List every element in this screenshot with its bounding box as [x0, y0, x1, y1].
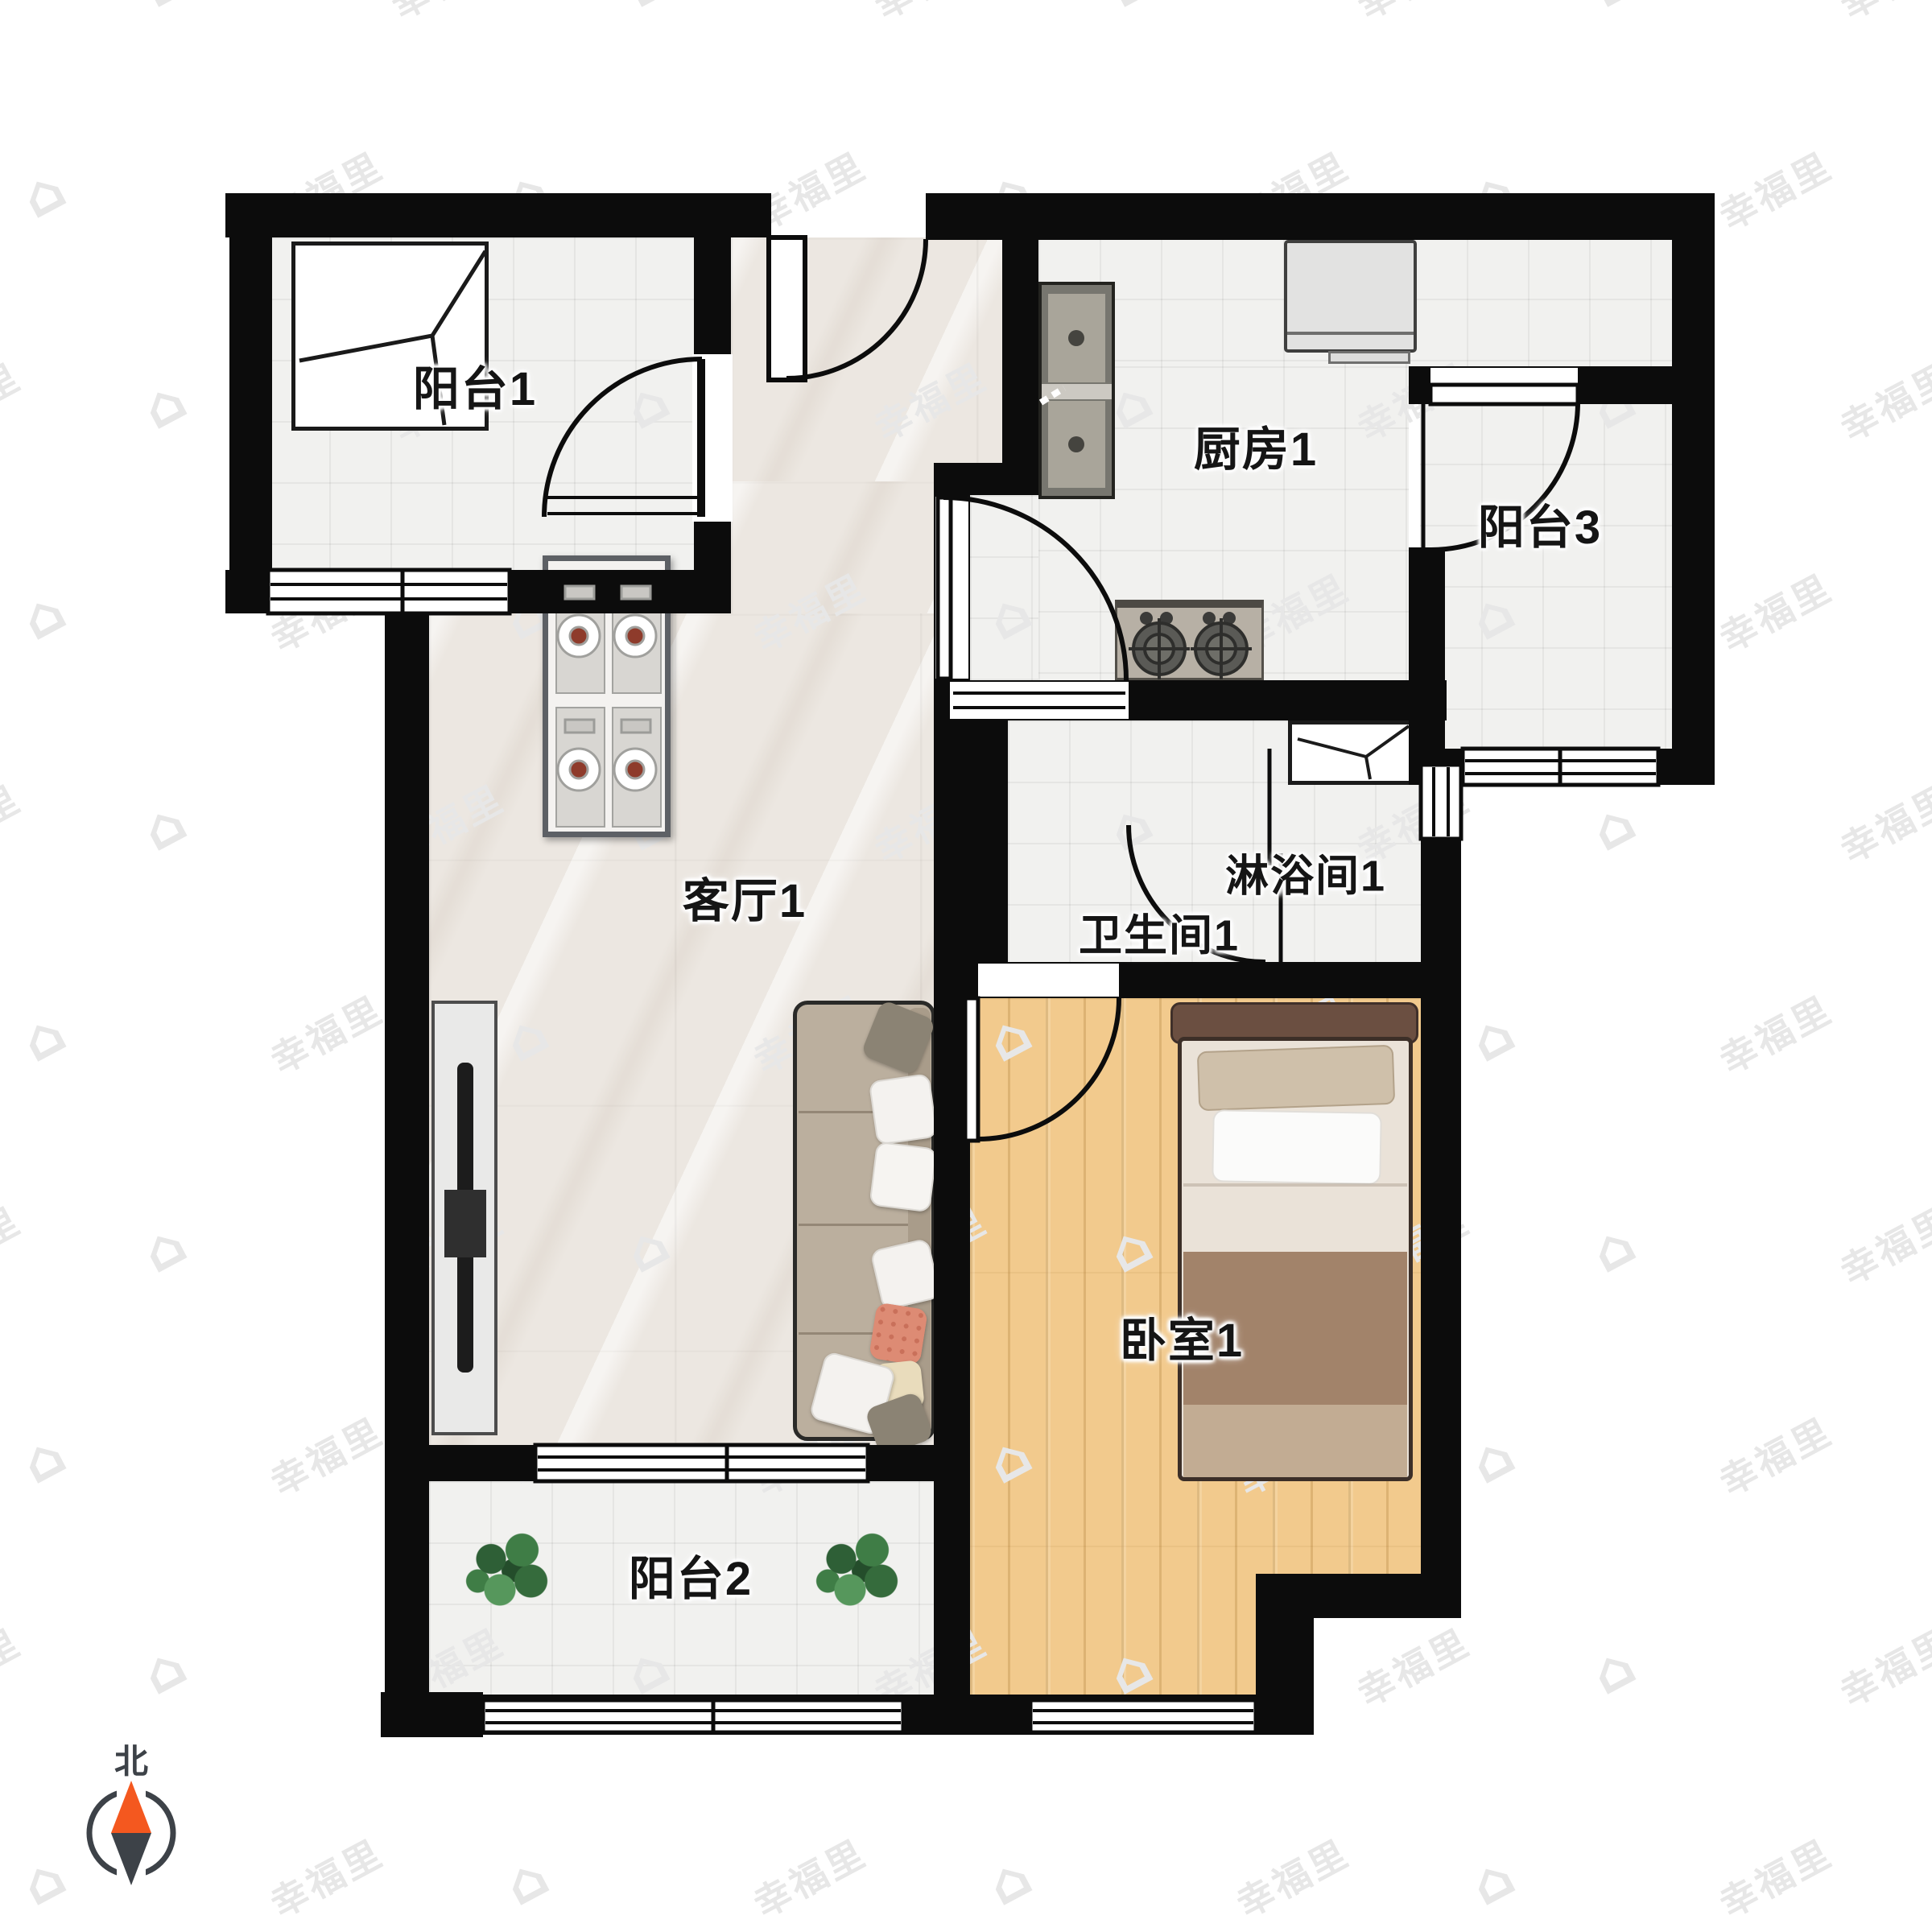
watermark-house-icon: ⌂	[1581, 1212, 1645, 1286]
watermark-house-icon: ⌂	[132, 1633, 196, 1708]
watermark-text: 幸福里	[260, 1825, 391, 1929]
watermark-house-icon: ⌂	[132, 0, 196, 21]
watermark-house-icon: ⌂	[132, 1212, 196, 1286]
fridge-handle	[1328, 351, 1410, 364]
watermark-house-icon: ⌂	[615, 0, 679, 21]
shower-basin-cabinet	[1288, 720, 1414, 785]
room-label-balcony3: 阳台3	[1478, 489, 1602, 557]
watermark-text: 幸福里	[1709, 981, 1840, 1085]
wall-kitchen-bottom	[934, 680, 1447, 720]
watermark-text: 幸福里	[1830, 349, 1932, 452]
fridge-door-line	[1287, 332, 1414, 335]
wall-left-upper	[229, 193, 272, 613]
floor-plan: 幸福里⌂幸福里⌂幸福里⌂幸福里⌂幸福里⌂幸福里⌂幸福里⌂幸福里⌂幸福里⌂幸福里⌂…	[0, 0, 1932, 1932]
wall-top-left	[225, 193, 771, 237]
room-label-kitchen1: 厨房1	[1194, 411, 1318, 479]
watermark-text: 幸福里	[0, 1614, 30, 1718]
wall-balcony1-bottom	[225, 570, 731, 613]
watermark-text: 幸福里	[1709, 1403, 1840, 1507]
watermark-text: 幸福里	[1709, 138, 1840, 242]
sink-basin	[1048, 401, 1105, 488]
wall-balcony2-top-right-stub	[868, 1445, 934, 1481]
watermark-text: 幸福里	[1709, 1825, 1840, 1929]
sofa-pillow-white	[869, 1073, 938, 1146]
balcony3-floor	[1420, 402, 1672, 749]
stove	[1115, 600, 1264, 680]
wall-balcony2-top-left-stub	[385, 1445, 535, 1481]
watermark-text: 幸福里	[381, 0, 512, 30]
watermark-house-icon: ⌂	[132, 368, 196, 443]
wall-balcony1-right	[694, 193, 731, 613]
watermark-house-icon: ⌂	[1581, 1633, 1645, 1708]
watermark-text: 幸福里	[1347, 0, 1478, 30]
watermark-house-icon: ⌂	[11, 157, 76, 232]
place-setting	[555, 707, 605, 828]
watermark-text: 幸福里	[0, 1192, 30, 1296]
watermark-text: 幸福里	[0, 349, 30, 452]
watermark-house-icon: ⌂	[1581, 790, 1645, 865]
plant	[464, 1528, 553, 1616]
watermark-text: 幸福里	[0, 770, 30, 874]
watermark-house-icon: ⌂	[11, 1422, 76, 1497]
room-label-shower1: 淋浴间1	[1225, 840, 1386, 904]
bed-blanket-fold	[1183, 1405, 1407, 1477]
sofa-seam	[799, 1224, 908, 1226]
watermark-text: 幸福里	[743, 1825, 874, 1929]
watermark-text: 幸福里	[260, 1403, 391, 1507]
bed-pillow-tan	[1197, 1045, 1395, 1111]
sink-divider	[1042, 384, 1112, 399]
wall-bedroom-top	[934, 962, 1421, 998]
watermark-house-icon: ⌂	[1098, 0, 1162, 21]
wall-kitchen-left-upper	[1002, 193, 1038, 495]
watermark-house-icon: ⌂	[1460, 1844, 1525, 1919]
watermark-house-icon: ⌂	[11, 1844, 76, 1919]
watermark-text: 幸福里	[1830, 1614, 1932, 1718]
room-label-balcony2: 阳台2	[629, 1541, 753, 1608]
watermark-house-icon: ⌂	[1460, 1422, 1525, 1497]
wall-left-lower	[385, 613, 429, 1696]
sofa-pillow-coral	[869, 1302, 928, 1365]
wall-bottom-left-corner	[381, 1692, 483, 1737]
kitchen-door-nook-floor	[970, 495, 1038, 680]
bed-pillow-white	[1212, 1109, 1382, 1185]
watermark-house-icon: ⌂	[132, 790, 196, 865]
wall-right-outer	[1672, 193, 1715, 785]
entry-corridor-floor	[731, 237, 1002, 481]
watermark-text: 幸福里	[1709, 559, 1840, 663]
room-label-bath1: 卫生间1	[1079, 900, 1240, 964]
wall-bedroom-right	[1421, 749, 1461, 1579]
watermark-house-icon: ⌂	[11, 579, 76, 654]
room-label-bedroom1: 卧室1	[1120, 1302, 1244, 1370]
plant	[815, 1528, 903, 1616]
wall-balcony3-top	[1409, 366, 1672, 404]
watermark-house-icon: ⌂	[1460, 1001, 1525, 1075]
watermark-text: 幸福里	[864, 0, 995, 30]
bed-sheet-line	[1183, 1183, 1407, 1187]
watermark-house-icon: ⌂	[977, 1844, 1042, 1919]
watermark-text: 幸福里	[0, 0, 30, 30]
compass-north-label: 北	[114, 1735, 148, 1784]
room-label-living1: 客厅1	[683, 863, 807, 931]
watermark-text: 幸福里	[1830, 1192, 1932, 1296]
watermark-text: 幸福里	[1830, 770, 1932, 874]
watermark-text: 幸福里	[1830, 0, 1932, 30]
wall-top-right	[926, 193, 1715, 240]
watermark-text: 幸福里	[260, 981, 391, 1085]
bedroom-floor-notch	[1314, 1618, 1421, 1700]
watermark-house-icon: ⌂	[1581, 0, 1645, 21]
wall-center-vertical	[934, 463, 970, 1719]
sink-basin	[1048, 294, 1105, 382]
wall-bath-left	[970, 720, 1008, 962]
balcony2-sliding-door	[535, 1445, 868, 1481]
wall-bottom-band	[381, 1695, 1314, 1735]
watermark-house-icon: ⌂	[494, 1844, 559, 1919]
watermark-house-icon: ⌂	[11, 1001, 76, 1075]
watermark-text: 幸福里	[1226, 1825, 1357, 1929]
room-label-balcony1: 阳台1	[413, 351, 537, 419]
fridge	[1284, 240, 1417, 353]
place-setting	[612, 707, 662, 828]
sofa-pillow-white	[869, 1141, 937, 1213]
compass-icon	[89, 1781, 173, 1885]
tv-mount	[444, 1190, 486, 1257]
corridor-lower-floor	[731, 481, 934, 613]
